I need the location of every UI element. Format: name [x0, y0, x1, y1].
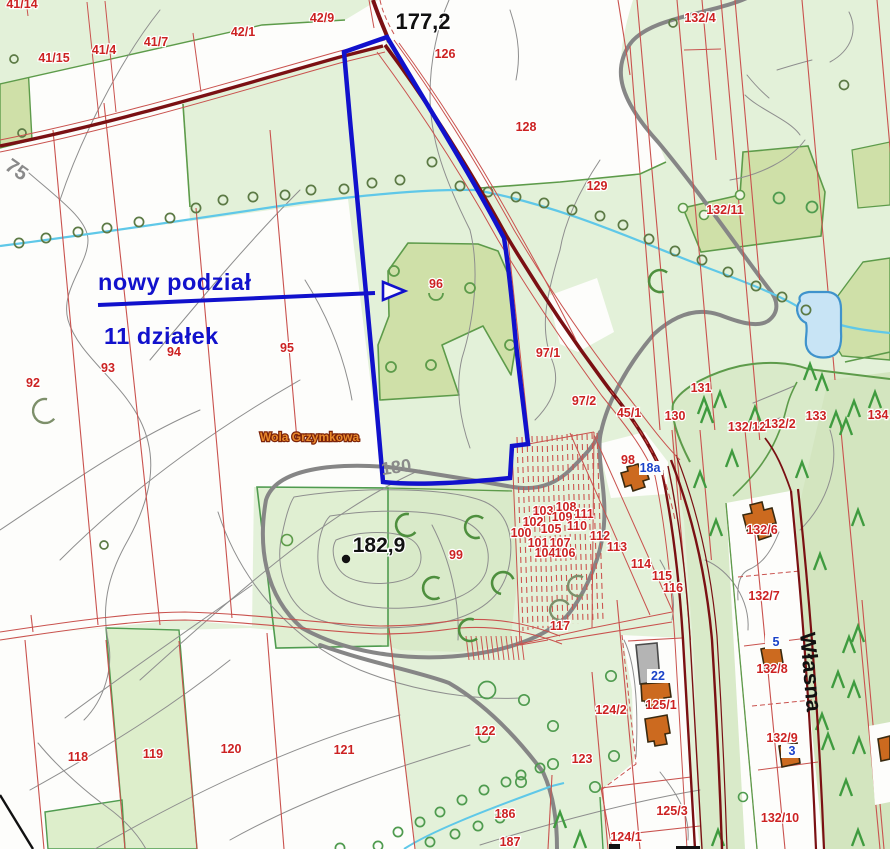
svg-text:132/11: 132/11 [706, 203, 744, 217]
svg-text:122: 122 [475, 724, 496, 738]
svg-text:187: 187 [500, 835, 521, 849]
svg-text:94: 94 [167, 345, 181, 359]
svg-text:132/7: 132/7 [748, 589, 779, 603]
svg-text:186: 186 [495, 807, 516, 821]
svg-text:106: 106 [555, 546, 576, 560]
svg-text:18a: 18a [640, 461, 662, 475]
svg-text:180: 180 [380, 455, 413, 479]
svg-text:132/9: 132/9 [766, 731, 797, 745]
svg-text:98: 98 [621, 453, 635, 467]
svg-text:134: 134 [868, 408, 889, 422]
svg-text:182,9: 182,9 [353, 534, 406, 557]
svg-text:133: 133 [806, 409, 827, 423]
svg-text:124/1: 124/1 [610, 830, 641, 844]
svg-text:132/4: 132/4 [684, 11, 715, 25]
svg-text:105: 105 [541, 522, 562, 536]
svg-text:177,2: 177,2 [395, 9, 450, 34]
svg-text:104: 104 [535, 546, 556, 560]
svg-text:3: 3 [789, 744, 796, 758]
svg-text:132/10: 132/10 [761, 811, 799, 825]
svg-text:41/4: 41/4 [92, 43, 116, 57]
svg-text:110: 110 [567, 519, 587, 533]
svg-text:129: 129 [587, 179, 608, 193]
svg-text:113: 113 [607, 540, 627, 554]
svg-text:114: 114 [631, 557, 651, 571]
svg-text:97/1: 97/1 [536, 346, 560, 360]
svg-text:93: 93 [101, 361, 115, 375]
svg-text:116: 116 [663, 581, 683, 595]
svg-text:22: 22 [651, 669, 665, 683]
svg-text:126: 126 [435, 47, 456, 61]
svg-text:41/15: 41/15 [38, 51, 69, 65]
svg-text:117: 117 [550, 619, 570, 633]
svg-text:121: 121 [334, 743, 355, 757]
svg-text:120: 120 [221, 742, 242, 756]
svg-text:92: 92 [26, 376, 40, 390]
svg-text:95: 95 [280, 341, 294, 355]
svg-text:124/2: 124/2 [595, 703, 626, 717]
svg-text:97/2: 97/2 [572, 394, 596, 408]
svg-text:96: 96 [429, 277, 443, 291]
svg-text:118: 118 [68, 750, 88, 764]
svg-text:132/6: 132/6 [746, 523, 777, 537]
svg-text:128: 128 [516, 120, 537, 134]
svg-text:125/1: 125/1 [645, 698, 676, 712]
svg-text:125/3: 125/3 [656, 804, 687, 818]
svg-text:123: 123 [572, 752, 593, 766]
svg-text:99: 99 [449, 548, 463, 562]
svg-text:41/7: 41/7 [144, 35, 168, 49]
svg-text:5: 5 [773, 635, 780, 649]
svg-text:11 działek: 11 działek [104, 323, 219, 349]
svg-text:Wola Grzymkowa: Wola Grzymkowa [260, 430, 359, 444]
svg-text:132/8: 132/8 [756, 662, 787, 676]
svg-text:41/14: 41/14 [6, 0, 37, 11]
svg-text:130: 130 [665, 409, 686, 423]
svg-text:131: 131 [691, 381, 712, 395]
svg-text:42/1: 42/1 [231, 25, 255, 39]
svg-text:132/12: 132/12 [728, 420, 766, 434]
svg-text:45/1: 45/1 [617, 406, 641, 420]
svg-text:nowy podział: nowy podział [98, 269, 252, 295]
svg-text:132/2: 132/2 [764, 417, 795, 431]
svg-text:119: 119 [143, 747, 163, 761]
svg-text:42/9: 42/9 [310, 11, 334, 25]
